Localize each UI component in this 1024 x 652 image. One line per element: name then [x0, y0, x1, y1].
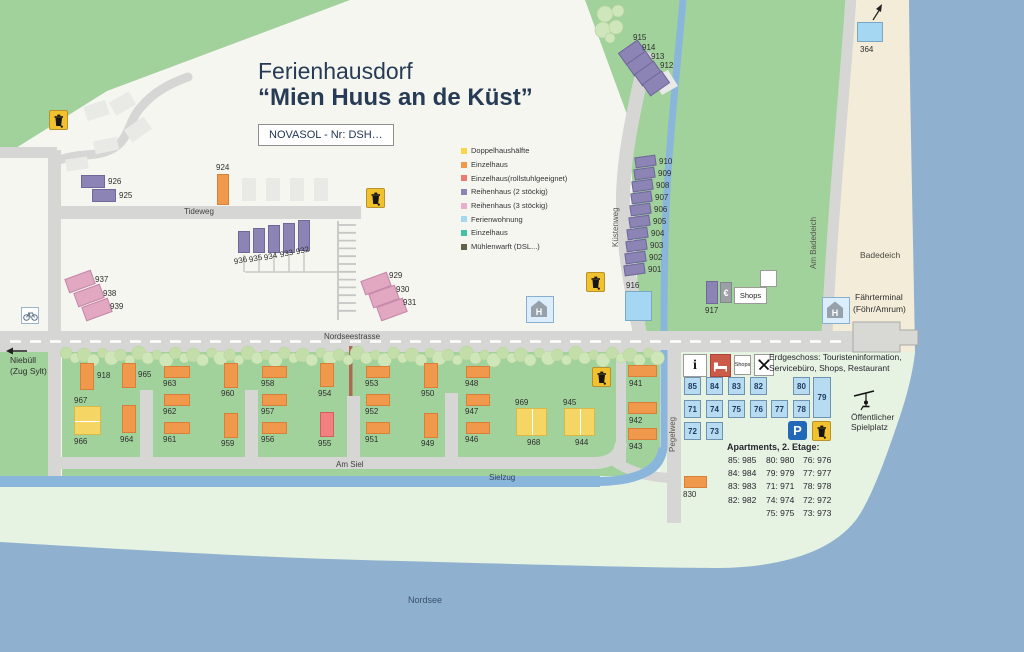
- house-956: [262, 422, 287, 434]
- tourist-info-icon: i: [683, 354, 707, 377]
- house-label-364: 364: [860, 46, 873, 54]
- house-label-913: 913: [651, 53, 664, 61]
- apartment-74: 74: [706, 400, 723, 418]
- house-364: [857, 22, 883, 42]
- house-918: [80, 363, 94, 390]
- house-952: [366, 394, 390, 406]
- legend-swatch: [461, 148, 467, 154]
- house-label-902: 902: [649, 254, 662, 262]
- house-963: [164, 366, 190, 378]
- house-label-938: 938: [103, 290, 116, 298]
- house-964: [122, 405, 136, 433]
- legend-item-7: Mühlenwarft (DSL...): [461, 240, 567, 254]
- house-965: [122, 363, 136, 388]
- label-faehrterminal: Fährterminal: [855, 293, 903, 302]
- house-label-952: 952: [365, 408, 378, 416]
- house-959: [224, 413, 238, 438]
- house-label-947: 947: [465, 408, 478, 416]
- road-label-pegelweg: Pegelweg: [669, 417, 677, 452]
- waste-container-icon: [592, 367, 611, 387]
- house-label-955: 955: [318, 440, 331, 448]
- house-label-941: 941: [629, 380, 642, 388]
- house-916: [625, 291, 652, 321]
- house-948: [466, 366, 490, 378]
- house-954: [320, 363, 334, 387]
- house-label-942: 942: [629, 417, 642, 425]
- waste-container-icon: [812, 421, 831, 441]
- house-label-906: 906: [654, 206, 667, 214]
- house-label-957: 957: [261, 408, 274, 416]
- bus-stop-icon: H: [822, 297, 850, 324]
- house-917: [706, 281, 718, 304]
- svg-text:H: H: [832, 308, 839, 318]
- house-label-965: 965: [138, 371, 151, 379]
- house-926: [81, 175, 105, 188]
- outbuilding: [266, 178, 280, 201]
- shops-icon: Shops: [734, 355, 751, 375]
- house-label-937: 937: [95, 276, 108, 284]
- apartment-mapping: 73: 973: [803, 509, 831, 518]
- house-935: [253, 228, 265, 253]
- house-942: [628, 402, 657, 414]
- house-label-930: 930: [396, 286, 409, 294]
- road-label-kuestenweg: Küstenweg: [612, 207, 620, 247]
- house-label-959: 959: [221, 440, 234, 448]
- water-label-nordsee: Nordsee: [408, 596, 442, 605]
- novasol-ref-box: NOVASOL - Nr: DSH…: [258, 124, 394, 146]
- apartment-84: 84: [706, 377, 723, 395]
- apartment-75: 75: [728, 400, 745, 418]
- erdgeschoss-line1: Erdgeschoss: Touristeninformation,: [769, 353, 902, 362]
- label-spielplatz-2: Spielplatz: [851, 423, 888, 432]
- apartment-73: 73: [706, 422, 723, 440]
- house-961: [164, 422, 190, 434]
- legend-label: Reihenhaus (3 stöckig): [471, 201, 548, 210]
- house-960: [224, 363, 238, 388]
- legend-swatch: [461, 162, 467, 168]
- house-label-904: 904: [651, 230, 664, 238]
- apartment-mapping: 72: 972: [803, 496, 831, 505]
- house-label-943: 943: [629, 443, 642, 451]
- house-label-954: 954: [318, 390, 331, 398]
- house-label-966: 966: [74, 438, 87, 446]
- apartment-mapping: 82: 982: [728, 496, 756, 505]
- waste-container-icon: [586, 272, 605, 292]
- label-spielplatz-1: Öffentlicher: [851, 413, 894, 422]
- apartment-mapping: 75: 975: [766, 509, 794, 518]
- house-label-962: 962: [163, 408, 176, 416]
- house-label-949: 949: [421, 440, 434, 448]
- map-title-line2: “Mien Huus an de Küst”: [258, 84, 533, 112]
- svg-text:H: H: [536, 307, 543, 317]
- house-label-929: 929: [389, 272, 402, 280]
- servicebuero-icon: [710, 354, 731, 377]
- label-faehrterminal-dest: (Föhr/Amrum): [853, 305, 906, 314]
- house-941: [628, 365, 657, 377]
- house-label-950: 950: [421, 390, 434, 398]
- house-label-915: 915: [633, 34, 646, 42]
- outbuilding: [242, 178, 256, 201]
- legend-label: Einzelhaus: [471, 228, 508, 237]
- house-label-964: 964: [120, 436, 133, 444]
- house-955: [320, 412, 334, 437]
- house-label-909: 909: [658, 170, 671, 178]
- waste-container-icon: [49, 110, 68, 130]
- house-label-905: 905: [653, 218, 666, 226]
- bus-stop-icon: H: [526, 296, 554, 323]
- apartment-76: 76: [750, 400, 767, 418]
- label-niebuell: Niebüll: [10, 356, 36, 365]
- apartment-79: 79: [813, 377, 831, 418]
- legend-label: Einzelhaus: [471, 160, 508, 169]
- house-830: [684, 476, 707, 488]
- house-label-945: 945: [563, 399, 576, 407]
- legend-item-0: Doppelhaushälfte: [461, 144, 567, 158]
- double-house-969-968: [516, 408, 547, 436]
- legend-item-1: Einzelhaus: [461, 158, 567, 172]
- house-label-951: 951: [365, 436, 378, 444]
- road-label-nordseestrasse: Nordseestrasse: [324, 333, 380, 341]
- legend-swatch: [461, 189, 467, 195]
- erdgeschoss-line2: Servicebüro, Shops, Restaurant: [769, 364, 889, 373]
- house-label-960: 960: [221, 390, 234, 398]
- label-niebuell-zug: (Zug Sylt): [10, 367, 47, 376]
- apartment-mapping: 74: 974: [766, 496, 794, 505]
- label-badedeich: Badedeich: [860, 251, 900, 260]
- house-label-912: 912: [660, 62, 673, 70]
- legend-label: Doppelhaushälfte: [471, 146, 529, 155]
- house-label-944: 944: [575, 439, 588, 447]
- house-label-961: 961: [163, 436, 176, 444]
- house-label-916: 916: [626, 282, 639, 290]
- house-label-939: 939: [110, 303, 123, 311]
- road-label-tideweg: Tideweg: [184, 208, 214, 216]
- legend-swatch: [461, 175, 467, 181]
- apartment-mapping: 79: 979: [766, 469, 794, 478]
- house-label-946: 946: [465, 436, 478, 444]
- legend-label: Mühlenwarft (DSL...): [471, 242, 540, 251]
- house-label-901: 901: [648, 266, 661, 274]
- legend-item-4: Reihenhaus (3 stöckig): [461, 199, 567, 213]
- legend-item-6: Einzelhaus: [461, 226, 567, 240]
- legend-swatch: [461, 203, 467, 209]
- map-title-line1: Ferienhausdorf: [258, 58, 413, 85]
- house-934: [268, 225, 280, 253]
- apartment-83: 83: [728, 377, 745, 395]
- apartment-mapping: 84: 984: [728, 469, 756, 478]
- legend-label: Reihenhaus (2 stöckig): [471, 187, 548, 196]
- apartment-mapping: 76: 976: [803, 456, 831, 465]
- apartment-71: 71: [684, 400, 701, 418]
- double-house-967-966: [74, 406, 101, 435]
- legend-swatch: [461, 230, 467, 236]
- house-label-968: 968: [527, 439, 540, 447]
- legend-label: Ferienwohnung: [471, 215, 523, 224]
- legend-swatch: [461, 244, 467, 250]
- waste-container-icon: [366, 188, 385, 208]
- legend: DoppelhaushälfteEinzelhausEinzelhaus(rol…: [461, 144, 567, 254]
- house-label-907: 907: [655, 194, 668, 202]
- house-962: [164, 394, 190, 406]
- house-label-931: 931: [403, 299, 416, 307]
- house-label-948: 948: [465, 380, 478, 388]
- apartment-82: 82: [750, 377, 767, 395]
- apartment-mapping: 78: 978: [803, 482, 831, 491]
- parking-area: [338, 221, 356, 320]
- house-925: [92, 189, 116, 202]
- house-936: [238, 231, 250, 253]
- parking-icon: P: [788, 421, 807, 440]
- double-house-945-944: [564, 408, 595, 436]
- euro-icon: €: [720, 282, 732, 303]
- apartment-mapping: 80: 980: [766, 456, 794, 465]
- legend-label: Einzelhaus(rollstuhlgeeignet): [471, 174, 567, 183]
- house-label-967: 967: [74, 397, 87, 405]
- house-label-925: 925: [119, 192, 132, 200]
- house-label-963: 963: [163, 380, 176, 388]
- house-953: [366, 366, 390, 378]
- outbuilding: [290, 178, 304, 201]
- apartment-mapping: 85: 985: [728, 456, 756, 465]
- white-building: [760, 270, 777, 287]
- house-950: [424, 363, 438, 388]
- house-947: [466, 394, 490, 406]
- house-943: [628, 428, 657, 440]
- apartment-85: 85: [684, 377, 701, 395]
- house-label-830: 830: [683, 491, 696, 499]
- apartment-mapping: 71: 971: [766, 482, 794, 491]
- legend-item-2: Einzelhaus(rollstuhlgeeignet): [461, 171, 567, 185]
- bicycle-icon: [21, 307, 39, 324]
- apartment-77: 77: [771, 400, 788, 418]
- house-label-924: 924: [216, 164, 229, 172]
- house-957: [262, 394, 287, 406]
- house-946: [466, 422, 490, 434]
- legend-item-3: Reihenhaus (2 stöckig): [461, 185, 567, 199]
- house-label-918: 918: [97, 372, 110, 380]
- house-label-958: 958: [261, 380, 274, 388]
- apartment-80: 80: [793, 377, 810, 395]
- house-label-956: 956: [261, 436, 274, 444]
- house-label-969: 969: [515, 399, 528, 407]
- legend-item-5: Ferienwohnung: [461, 212, 567, 226]
- house-label-914: 914: [642, 44, 655, 52]
- apartments-title: Apartments, 2. Etage:: [727, 443, 820, 452]
- house-label-908: 908: [656, 182, 669, 190]
- house-label-953: 953: [365, 380, 378, 388]
- apartment-mapping: 83: 983: [728, 482, 756, 491]
- house-958: [262, 366, 287, 378]
- canal-label-sielzug: Sielzug: [489, 474, 515, 482]
- shops-building: Shops: [734, 287, 767, 304]
- legend-swatch: [461, 216, 467, 222]
- holiday-village-map: Ferienhausdorf “Mien Huus an de Küst” NO…: [0, 0, 1024, 652]
- house-label-910: 910: [659, 158, 672, 166]
- road-label-am-badedeich: Am Badedeich: [810, 217, 818, 269]
- house-label-903: 903: [650, 242, 663, 250]
- apartment-78: 78: [793, 400, 810, 418]
- apartment-72: 72: [684, 422, 701, 440]
- house-924: [217, 174, 229, 205]
- apartment-mapping: 77: 977: [803, 469, 831, 478]
- house-951: [366, 422, 390, 434]
- house-949: [424, 413, 438, 438]
- outbuilding: [314, 178, 328, 201]
- house-label-926: 926: [108, 178, 121, 186]
- road-label-am-siel: Am Siel: [336, 461, 364, 469]
- house-label-917: 917: [705, 307, 718, 315]
